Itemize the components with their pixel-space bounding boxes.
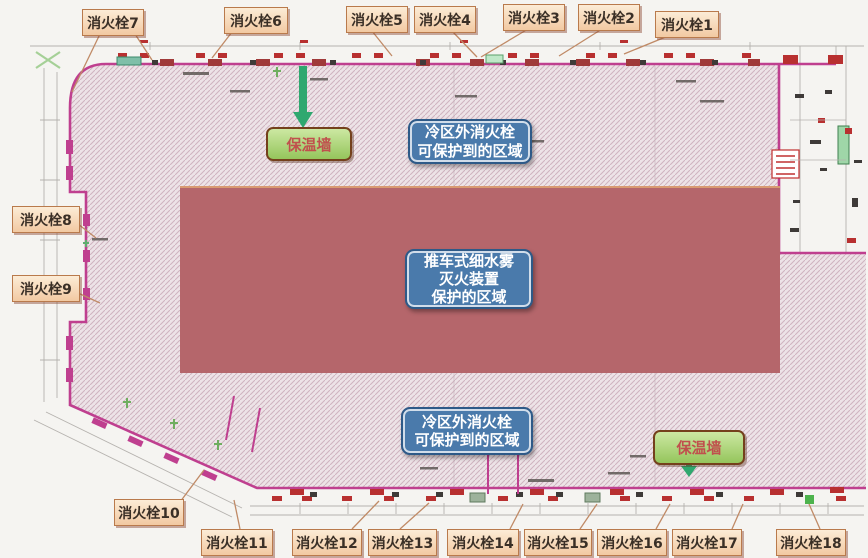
label-hydrant-4: 消火栓4 — [414, 6, 476, 33]
label-hydrant-18: 消火栓18 — [776, 529, 846, 556]
label-cold-zone-coverage-bottom: 冷区外消火栓 可保护到的区域 — [401, 407, 533, 455]
fire-hydrant-floor-plan: 消火栓1 消火栓2 消火栓3 消火栓4 消火栓5 消火栓6 消火栓7 消火栓8 … — [0, 0, 868, 558]
label-hydrant-11: 消火栓11 — [201, 529, 273, 556]
label-hydrant-2: 消火栓2 — [578, 4, 640, 31]
label-hydrant-15: 消火栓15 — [524, 529, 592, 556]
label-cold-zone-coverage-top: 冷区外消火栓 可保护到的区域 — [408, 119, 532, 164]
label-hydrant-10: 消火栓10 — [114, 499, 184, 526]
label-hydrant-3: 消火栓3 — [503, 4, 565, 31]
label-hydrant-13: 消火栓13 — [368, 529, 437, 556]
label-hydrant-16: 消火栓16 — [597, 529, 667, 556]
label-hydrant-6: 消火栓6 — [224, 7, 288, 34]
label-hydrant-8: 消火栓8 — [12, 206, 80, 233]
label-hydrant-1: 消火栓1 — [655, 11, 719, 38]
label-hydrant-9: 消火栓9 — [12, 275, 80, 302]
label-insulation-wall-bottom: 保温墙 — [653, 430, 745, 465]
label-cart-mist-zone: 推车式细水雾 灭火装置 保护的区域 — [405, 249, 533, 309]
label-hydrant-14: 消火栓14 — [447, 529, 519, 556]
label-hydrant-7: 消火栓7 — [82, 9, 144, 36]
label-insulation-wall-top: 保温墙 — [266, 127, 352, 161]
label-hydrant-5: 消火栓5 — [346, 6, 408, 33]
label-hydrant-12: 消火栓12 — [292, 529, 362, 556]
label-hydrant-17: 消火栓17 — [672, 529, 742, 556]
